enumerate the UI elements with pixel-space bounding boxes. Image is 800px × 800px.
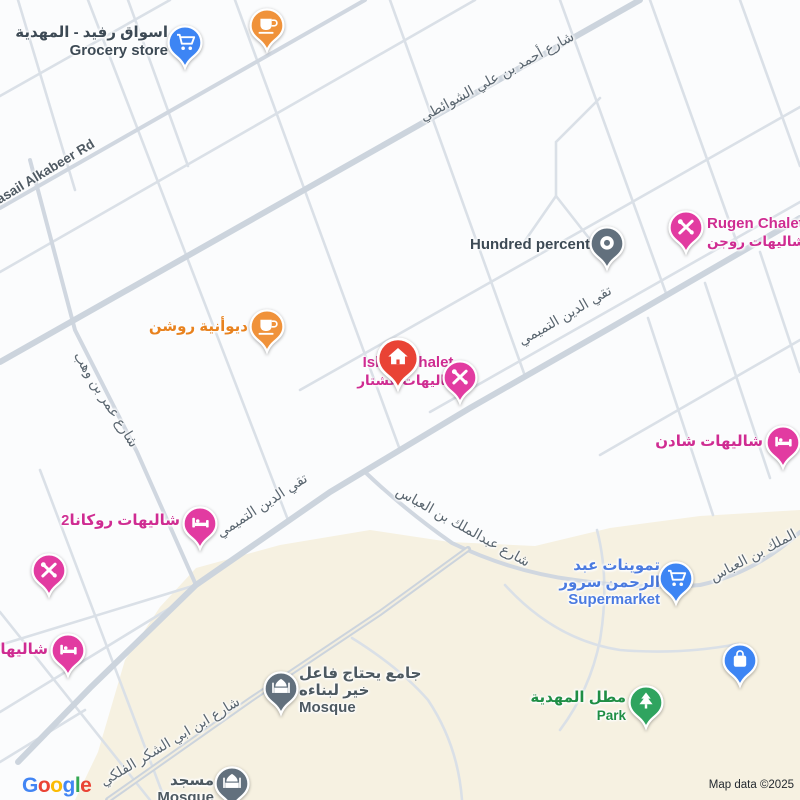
circle-ring-icon <box>600 236 614 250</box>
map-attribution: Map data ©2025 <box>709 779 794 791</box>
poi-name-arabic: شاليهات روكانا2 <box>48 512 180 530</box>
logo-letter: o <box>38 774 50 797</box>
poi-pin-mahdiya-viewpoint[interactable] <box>627 684 665 736</box>
poi-name-arabic: مسجد <box>128 772 214 789</box>
poi-label-rafid-grocery[interactable]: اسواق رفيد - المهدية Grocery store <box>0 24 168 60</box>
poi-pin-mosque-charity[interactable] <box>262 670 300 722</box>
logo-letter: G <box>22 774 38 797</box>
poi-label-rugen-chalet[interactable]: Rugen Chalet شاليهات روجن <box>707 215 800 251</box>
poi-name-arabic: شاليهات <box>0 641 48 659</box>
poi-name-arabic-2: الرحمن سرور <box>538 574 660 591</box>
poi-pin-bag-unlabeled[interactable] <box>721 642 759 694</box>
poi-name-arabic: اسواق رفيد - المهدية <box>0 24 168 42</box>
google-logo[interactable]: Google <box>22 774 91 798</box>
poi-pin-shaden-chalets[interactable] <box>764 424 800 476</box>
poi-pin-cafe-unlabeled[interactable] <box>248 7 286 59</box>
poi-pin-surur-supermarket[interactable] <box>657 560 695 612</box>
poi-pin-hundred-percent[interactable] <box>588 225 626 277</box>
poi-label-hundred-percent[interactable]: Hundred percent <box>455 236 590 254</box>
poi-label-mahdiya-viewpoint[interactable]: مطل المهدية Park <box>518 689 626 725</box>
poi-pin-roshan-diwaniya[interactable] <box>248 308 286 360</box>
poi-pin-tools-unlabeled[interactable] <box>30 552 68 604</box>
poi-name: Hundred percent <box>455 236 590 254</box>
poi-pin-rugen-chalet[interactable] <box>667 209 705 261</box>
poi-label-shaden-chalets[interactable]: شاليهات شادن <box>645 433 763 451</box>
poi-label-surur-supermarket[interactable]: تموينات عبد الرحمن سرور Supermarket <box>538 557 660 608</box>
poi-label-roshan-diwaniya[interactable]: ديوأنية روشن <box>98 318 248 336</box>
logo-letter: g <box>63 774 75 797</box>
poi-pin-mosque-south[interactable] <box>213 765 251 800</box>
poi-label-mosque-charity[interactable]: جامع يحتاج فاعل خير لبناءه Mosque <box>299 665 449 716</box>
poi-name-arabic: شاليهات شادن <box>645 433 763 451</box>
poi-name-arabic: مطل المهدية <box>518 689 626 707</box>
map-canvas[interactable]: شارع أحمد بن علي الشوائطي Wasail Alkabee… <box>0 0 800 800</box>
logo-letter: e <box>80 774 91 797</box>
poi-type: Supermarket <box>538 591 660 608</box>
poi-type: Park <box>518 707 626 725</box>
poi-type: Grocery store <box>0 42 168 60</box>
poi-name: Rugen Chalet <box>707 215 800 233</box>
poi-label-rokana2-chalets[interactable]: شاليهات روكانا2 <box>48 512 180 530</box>
poi-name-arabic-1: جامع يحتاج فاعل <box>299 665 449 682</box>
poi-name-arabic-1: تموينات عبد <box>538 557 660 574</box>
poi-label-mosque-south[interactable]: مسجد Mosque <box>128 772 214 800</box>
poi-label-chalets-left[interactable]: شاليهات <box>0 641 48 659</box>
logo-letter: o <box>50 774 62 797</box>
poi-name-arabic-2: خير لبناءه <box>299 682 449 699</box>
poi-pin-chalets-left[interactable] <box>49 632 87 684</box>
poi-pin-ishtar-tools[interactable] <box>441 359 479 411</box>
poi-pin-rokana2-chalets[interactable] <box>181 505 219 557</box>
poi-pin-rafid-grocery[interactable] <box>166 24 204 76</box>
poi-name-arabic: ديوأنية روشن <box>98 318 248 336</box>
poi-type: Mosque <box>128 789 214 800</box>
poi-type: Mosque <box>299 699 449 716</box>
poi-pin-ishtar-chalet-marker[interactable] <box>375 336 421 398</box>
poi-name-arabic: شاليهات روجن <box>707 233 800 251</box>
